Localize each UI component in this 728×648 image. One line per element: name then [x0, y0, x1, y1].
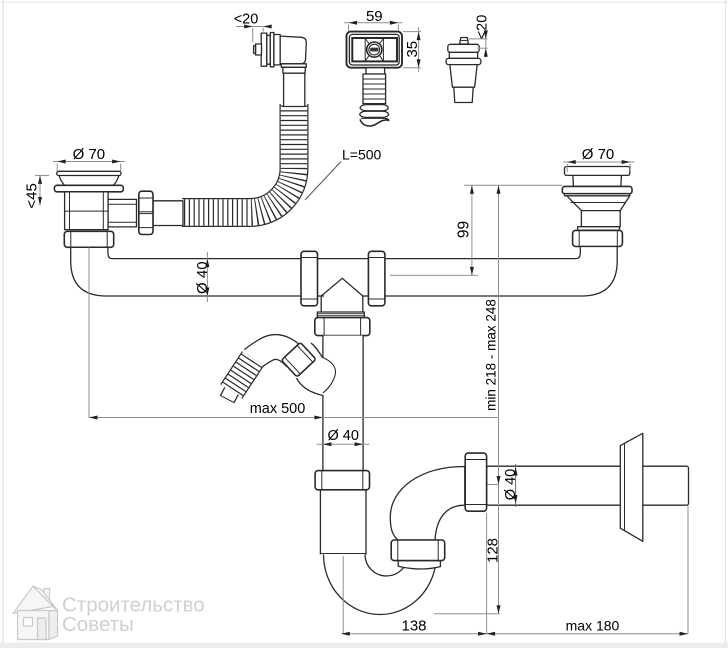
svg-text:L=500: L=500 [342, 147, 382, 163]
svg-text:Ø 70: Ø 70 [73, 146, 106, 163]
svg-text:Ø 40: Ø 40 [503, 469, 519, 500]
svg-text:Советы: Советы [62, 613, 134, 636]
svg-text:Ø 70: Ø 70 [582, 146, 615, 163]
svg-text:138: 138 [401, 618, 426, 635]
svg-text:max 180: max 180 [566, 618, 620, 634]
svg-text:Ø 40: Ø 40 [327, 428, 358, 444]
svg-text:<45: <45 [23, 183, 40, 208]
svg-text:Ø 40: Ø 40 [194, 261, 211, 294]
svg-text:max 500: max 500 [250, 401, 306, 417]
svg-text:<20: <20 [474, 15, 490, 40]
svg-text:min 218 - max 248: min 218 - max 248 [483, 299, 498, 411]
svg-text:99: 99 [456, 221, 473, 238]
